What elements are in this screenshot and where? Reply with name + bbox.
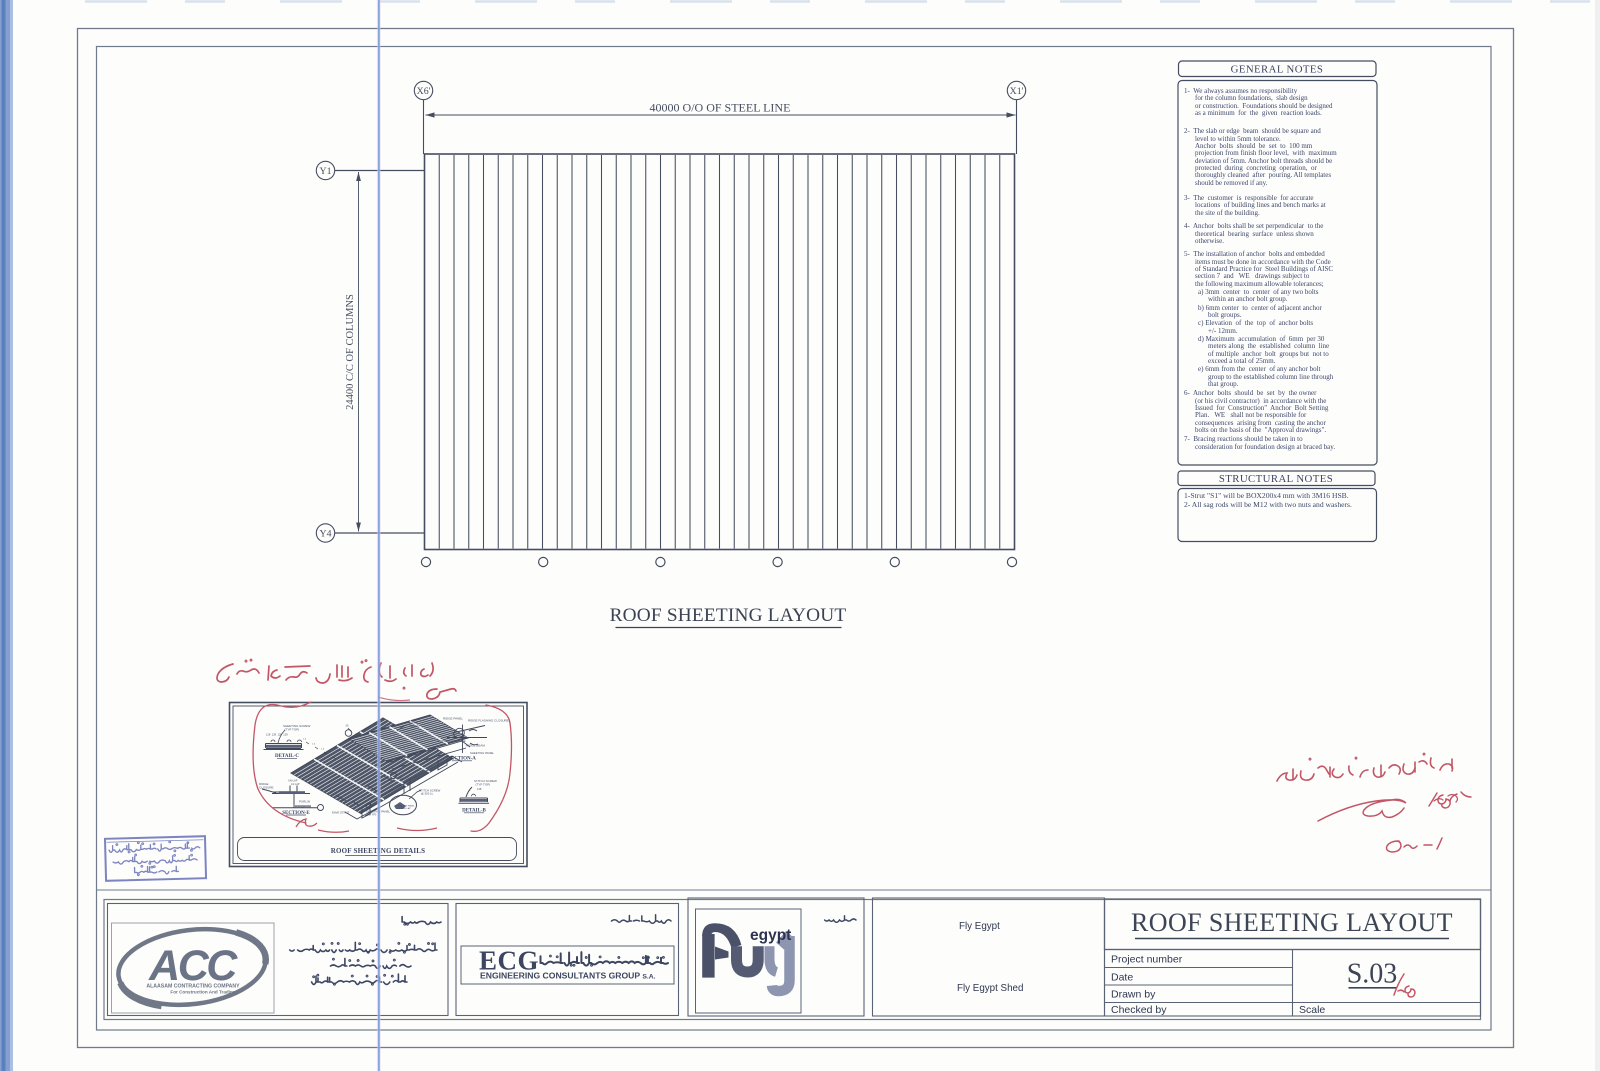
svg-text:40000 O/O OF STEEL LINE: 40000 O/O OF STEEL LINE: [650, 101, 791, 115]
svg-text:128: 128: [477, 787, 482, 791]
svg-text:EAVE STRUT: EAVE STRUT: [332, 811, 350, 815]
svg-text:1.0: 1.0: [312, 744, 316, 746]
svg-text:ROOF SHEETING LAYOUT: ROOF SHEETING LAYOUT: [1131, 908, 1453, 937]
svg-text:X6': X6': [417, 86, 431, 97]
svg-text:Checked by: Checked by: [1111, 1004, 1167, 1016]
svg-text:@ 500 LL: @ 500 LL: [421, 792, 434, 796]
svg-text:Fly Egypt Shed: Fly Egypt Shed: [957, 983, 1023, 994]
svg-text:PURLIN: PURLIN: [400, 777, 410, 781]
svg-text:ROOF SHEETING LAYOUT: ROOF SHEETING LAYOUT: [610, 605, 847, 626]
svg-text:1.0: 1.0: [303, 739, 307, 741]
svg-text:For Construction And Trading: For Construction And Trading: [170, 990, 235, 995]
svg-text:Y1: Y1: [320, 166, 332, 177]
svg-text:Fly Egypt: Fly Egypt: [959, 921, 1000, 932]
svg-text:OUTSIDE CLOSURE: OUTSIDE CLOSURE: [437, 739, 466, 743]
svg-text:RIDGE PANEL: RIDGE PANEL: [443, 717, 463, 721]
svg-text:Date: Date: [1111, 972, 1133, 984]
svg-text:STRUCTURAL NOTES: STRUCTURAL NOTES: [1219, 473, 1333, 485]
svg-text:FOUNDATION: FOUNDATION: [295, 805, 311, 808]
svg-text:Project number: Project number: [1111, 954, 1183, 966]
svg-text:PURLIN: PURLIN: [299, 800, 310, 804]
svg-text:SHEETING PANEL: SHEETING PANEL: [470, 751, 494, 755]
svg-text:1.0: 1.0: [321, 749, 325, 751]
svg-text:26: 26: [346, 724, 349, 728]
svg-text:Y4: Y4: [320, 529, 332, 540]
svg-text:RIDGE BEAM: RIDGE BEAM: [466, 744, 485, 748]
svg-text:GENERAL NOTES: GENERAL NOTES: [1231, 64, 1324, 76]
svg-text:PANEL: PANEL: [410, 724, 420, 728]
svg-text:X1': X1': [1010, 86, 1024, 97]
svg-text:(TYP TOP): (TYP TOP): [285, 728, 300, 732]
svg-text:CLOSURE: CLOSURE: [259, 786, 274, 790]
svg-text:1/2 LAP: 1/2 LAP: [291, 783, 300, 786]
svg-text:RIDGE FLASHING CLOSURE: RIDGE FLASHING CLOSURE: [468, 719, 509, 723]
svg-text:ENGINEERING CONSULTANTS GROUP: ENGINEERING CONSULTANTS GROUP S.A.: [480, 971, 656, 981]
svg-text:S.03: S.03: [1347, 959, 1398, 990]
svg-text:128 128 128 128: 128 128 128 128: [266, 733, 288, 737]
svg-text:(TYP): (TYP): [369, 813, 376, 817]
svg-text:(TYP TOP): (TYP TOP): [476, 783, 491, 787]
svg-text:24400 C/C OF COLUMNS: 24400 C/C OF COLUMNS: [345, 294, 356, 410]
svg-text:@ SIDE LAP: @ SIDE LAP: [398, 807, 411, 810]
svg-text:Drawn by: Drawn by: [1111, 989, 1156, 1001]
svg-text:UN-LAP: UN-LAP: [288, 779, 298, 783]
svg-text:Scale: Scale: [1299, 1004, 1325, 1016]
svg-text:egypt: egypt: [750, 927, 791, 944]
